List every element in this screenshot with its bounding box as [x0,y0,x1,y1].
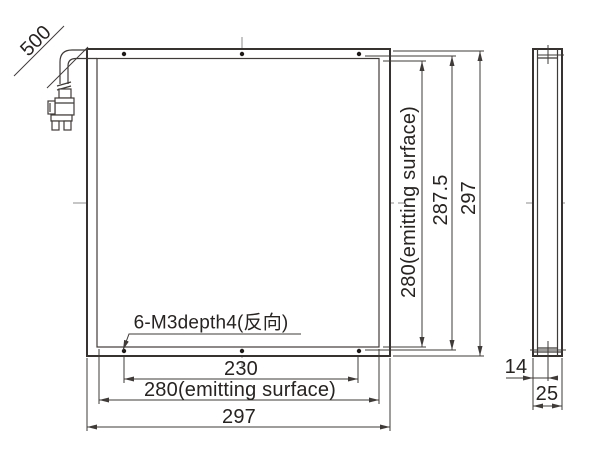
front-view-panel [87,49,390,356]
connector-ferrule [59,89,71,98]
connector-pin-left [52,121,59,130]
connector-base-bar [51,115,72,121]
connector-latch [48,101,55,114]
thread-note-label: 6-M3depth4(反向) [134,314,289,333]
height-holes-dim-label: 287.5 [431,174,451,225]
connector-pin-right [64,121,71,130]
width-emitting-dim-label: 280(emitting surface) [144,380,336,400]
hole-bottom-right [357,349,361,353]
hole-top-right [357,52,361,56]
height-total-dim-label: 297 [459,181,479,215]
height-emitting-dim-label: 280(emitting surface) [399,106,419,298]
width-holes-dim-label: 230 [224,359,258,379]
connector-body [55,98,74,115]
side-hole-offset-dim-label: 14 [505,357,528,377]
side-view-panel [530,45,566,381]
hole-top-left [122,52,126,56]
hole-bottom-center [240,349,244,353]
hole-bottom-left [122,349,126,353]
hole-top-center [240,52,244,56]
technical-drawing-canvas: 500 6-M3depth4(反向) 230 280(emitting surf… [0,0,600,450]
panel-outer-frame [87,49,390,356]
side-depth-dim-label: 25 [536,384,559,404]
width-total-dim-label: 297 [222,407,256,427]
cable-outer-line [60,50,88,84]
